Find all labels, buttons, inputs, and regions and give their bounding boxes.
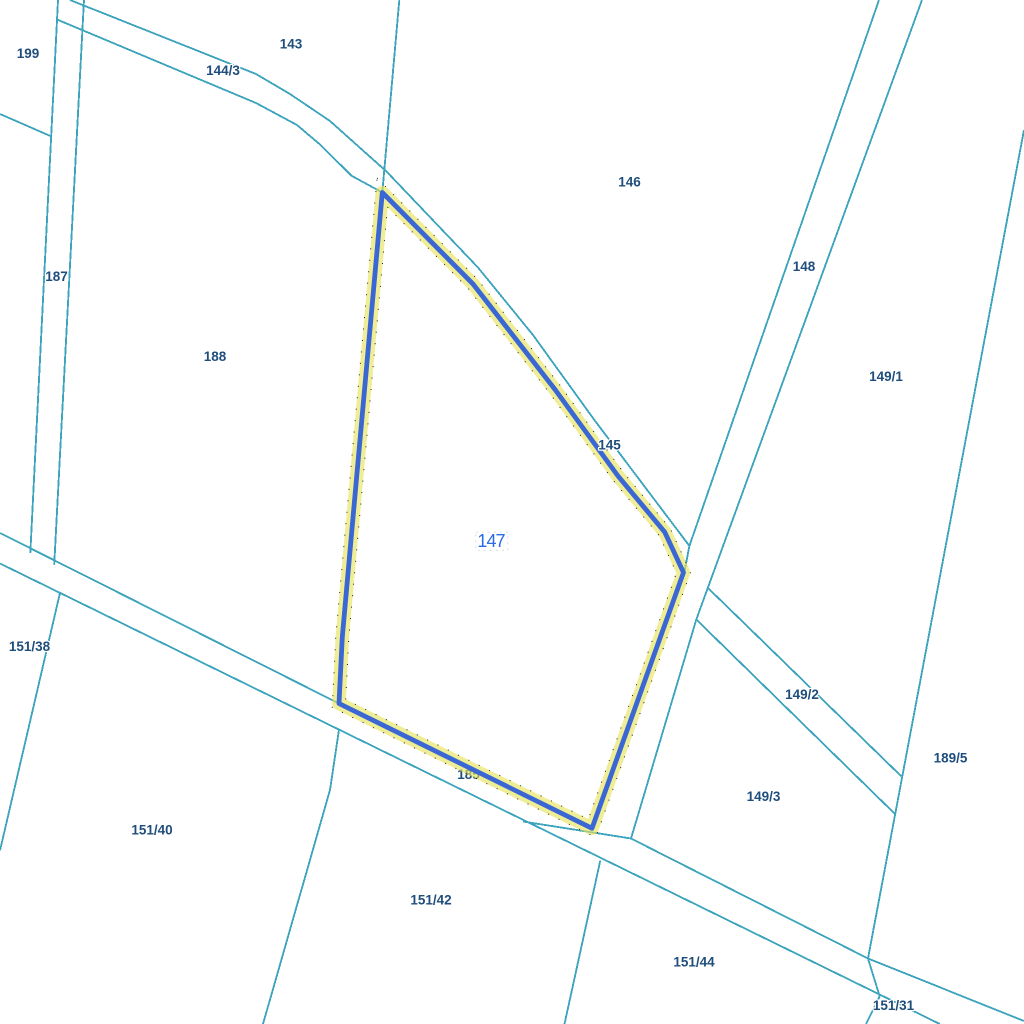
svg-text:199: 199 (17, 46, 40, 61)
svg-text:151/38: 151/38 (9, 639, 51, 654)
svg-text:151/31: 151/31 (873, 998, 915, 1013)
svg-text:189/5: 189/5 (934, 751, 968, 766)
svg-text:149/3: 149/3 (747, 789, 781, 804)
svg-text:144/3: 144/3 (206, 63, 240, 78)
svg-text:149/1: 149/1 (869, 369, 903, 384)
svg-text:148: 148 (793, 259, 816, 274)
svg-text:145: 145 (598, 438, 621, 453)
svg-text:143: 143 (280, 37, 303, 52)
svg-text:151/42: 151/42 (410, 893, 451, 908)
svg-text:188: 188 (204, 349, 227, 364)
svg-text:151/44: 151/44 (673, 955, 715, 970)
svg-text:151/40: 151/40 (131, 823, 172, 838)
svg-text:149/2: 149/2 (785, 687, 819, 702)
svg-text:146: 146 (618, 175, 641, 190)
svg-text:187: 187 (45, 269, 68, 284)
svg-text:147: 147 (477, 531, 505, 551)
